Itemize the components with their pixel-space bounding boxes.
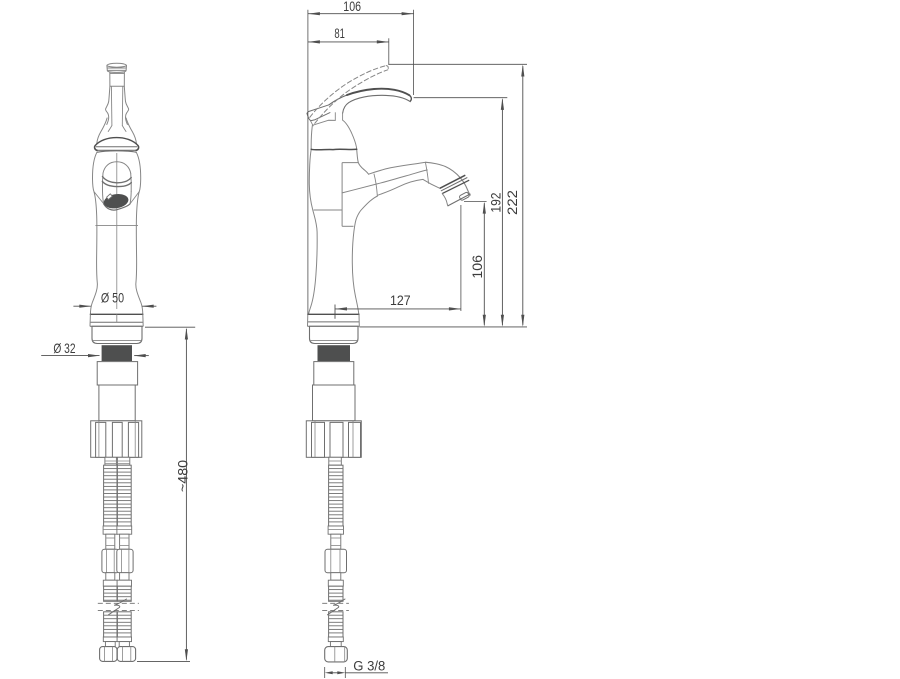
svg-text:106: 106 bbox=[470, 255, 486, 279]
svg-text:106: 106 bbox=[343, 0, 361, 15]
svg-text:192: 192 bbox=[488, 193, 504, 213]
svg-text:Ø 32: Ø 32 bbox=[53, 340, 75, 356]
svg-text:81: 81 bbox=[334, 26, 345, 42]
svg-text:Ø 50: Ø 50 bbox=[101, 290, 124, 306]
svg-text:G 3/8: G 3/8 bbox=[353, 659, 385, 675]
svg-text:~480: ~480 bbox=[176, 460, 192, 492]
svg-text:127: 127 bbox=[390, 293, 411, 309]
svg-text:222: 222 bbox=[505, 190, 521, 215]
